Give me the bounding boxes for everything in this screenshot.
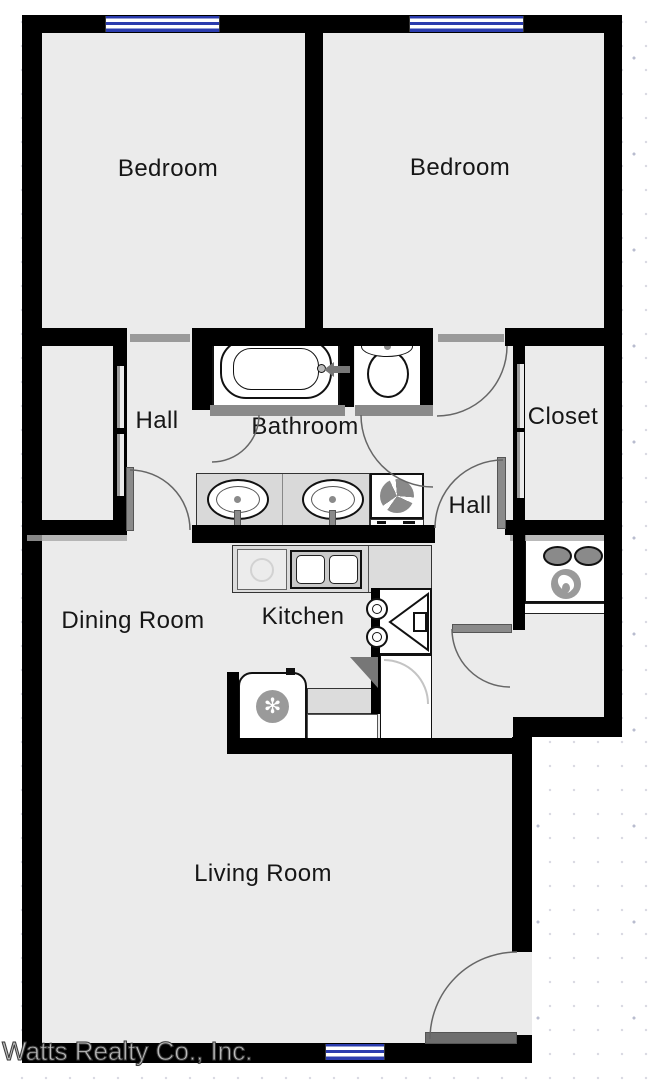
wall-bedrooms-bottom-left: [22, 328, 127, 346]
label-closet: Closet: [528, 403, 598, 431]
label-hall-left: Hall: [136, 407, 179, 435]
floor-plan-canvas: ✻: [0, 0, 648, 1080]
stove-burner-bottom-inner: [372, 632, 382, 642]
wall-tub-toilet-divider: [340, 328, 354, 407]
closet-opening-top: [517, 364, 524, 428]
kitchen-counter-bottom: [307, 688, 378, 714]
kitchen-counter-right: [380, 655, 432, 740]
water-heater-burner-left: [543, 546, 572, 566]
kitchen-sink-basin-right: [329, 555, 358, 584]
wall-bathroom-top: [192, 328, 433, 346]
stove-burner-top-inner: [372, 604, 382, 614]
vanity-sink-left-drain: [234, 496, 241, 503]
toilet-bowl: [367, 350, 409, 398]
washer-dash-2: [403, 521, 415, 524]
label-bedroom-right: Bedroom: [410, 154, 510, 182]
water-heater-strip: [524, 603, 608, 614]
wall-bedroom-divider: [305, 15, 323, 330]
washer-dash-1: [377, 521, 386, 524]
bathtub-inner: [233, 348, 319, 390]
stove-box: [378, 588, 432, 655]
door-leaf-entry: [425, 1032, 517, 1044]
kitchen-cabinet-bottom: [307, 714, 378, 740]
label-hall-right: Hall: [449, 492, 492, 520]
refrigerator-notch: [286, 668, 295, 675]
label-bathroom: Bathroom: [251, 413, 358, 441]
left-closet-opening-bottom: [117, 434, 124, 496]
vanity-divider: [282, 474, 283, 525]
label-kitchen: Kitchen: [262, 603, 345, 631]
wall-kitchen-bottom: [227, 738, 513, 754]
wall-right-lower-a: [512, 737, 532, 952]
wall-dining-top-shadow: [27, 535, 127, 541]
door-leaf-dining-hall: [126, 467, 134, 531]
threshold-bedroom-left-door: [130, 334, 190, 342]
wall-right-upper: [604, 15, 622, 737]
wall-closet-bottom: [505, 520, 604, 535]
wall-left-closet: [113, 328, 127, 535]
label-bedroom-left: Bedroom: [118, 155, 218, 183]
door-leaf-rear-hall: [452, 624, 512, 633]
wall-waterheater-left: [513, 535, 525, 630]
window-bedroom-right: [409, 16, 524, 32]
bathtub-drain: [317, 364, 326, 373]
wall-dining-top: [22, 520, 127, 535]
threshold-bedroom-right-door: [438, 334, 504, 342]
kitchen-sink-basin-left: [296, 555, 325, 584]
wall-right-step: [513, 717, 622, 737]
wall-toilet-right: [420, 328, 433, 407]
threshold-toilet: [355, 405, 433, 416]
label-dining-room: Dining Room: [61, 607, 204, 635]
kitchen-counter-divider: [368, 546, 369, 592]
watermark-text: Watts Realty Co., Inc.: [2, 1036, 252, 1067]
window-living-room: [325, 1044, 385, 1060]
wall-vanity-kitchen: [192, 525, 435, 543]
closet-opening-bottom: [517, 432, 524, 498]
door-leaf-hall-right: [497, 457, 506, 529]
refrigerator-snowflake-icon: ✻: [256, 690, 289, 723]
wall-bathroom-left: [192, 328, 212, 410]
left-closet-opening-top: [117, 366, 124, 428]
dishwasher-circle: [250, 558, 274, 582]
water-heater-burner-right: [574, 546, 603, 566]
window-bedroom-left: [105, 16, 220, 32]
interior-lower: [22, 737, 532, 1063]
water-heater-flame-core: [562, 583, 570, 593]
washer-fan-icon: [380, 479, 414, 513]
label-living-room: Living Room: [194, 860, 332, 888]
vanity-sink-right-drain: [329, 496, 336, 503]
wall-kitchen-left-stub: [227, 672, 239, 738]
